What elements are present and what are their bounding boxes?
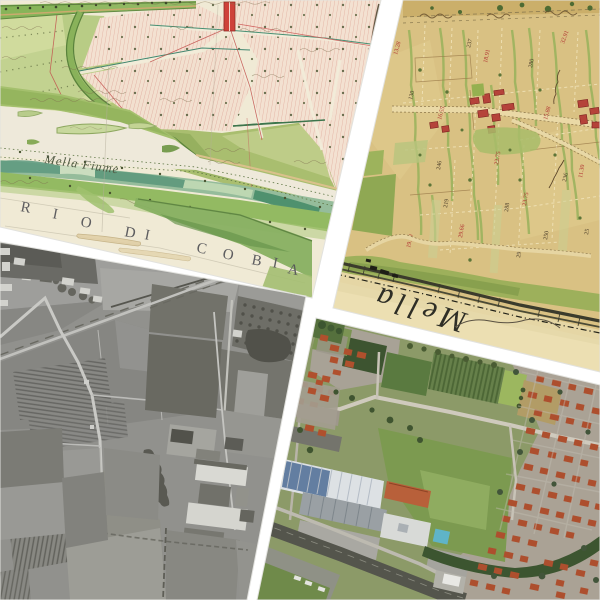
svg-text:25: 25 — [584, 228, 591, 235]
svg-text:288: 288 — [504, 203, 511, 213]
